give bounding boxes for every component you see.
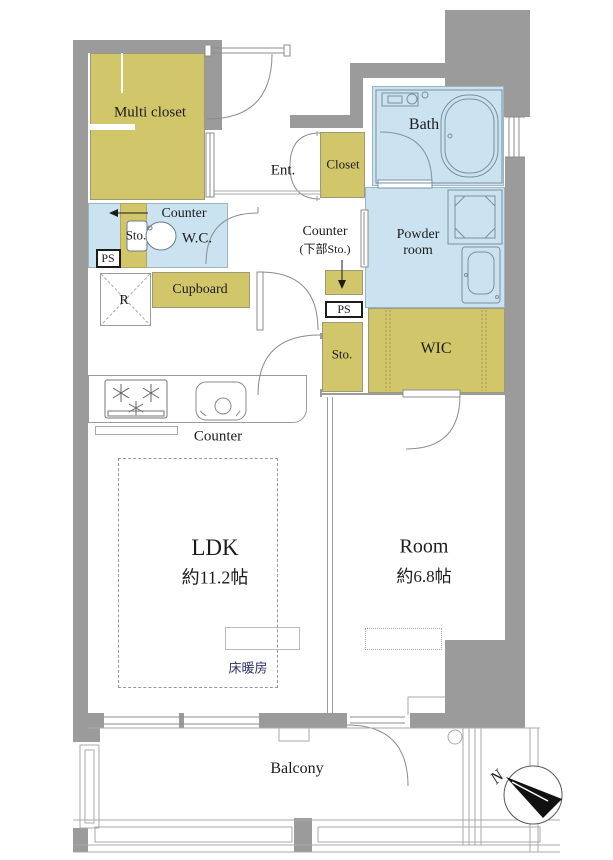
wall-right bbox=[505, 157, 525, 660]
wc-storage-label: Sto. bbox=[126, 229, 147, 244]
room-low-cabinet bbox=[365, 628, 442, 650]
wall-top-left bbox=[88, 40, 205, 53]
bath-window-gap bbox=[505, 117, 525, 157]
room-name-label: Room bbox=[400, 536, 449, 559]
bath-area bbox=[372, 86, 504, 186]
balcony-post bbox=[294, 818, 312, 852]
powder-room-label: Powder room bbox=[383, 227, 453, 259]
entry-step bbox=[210, 191, 322, 194]
cupboard-label: Cupboard bbox=[172, 282, 227, 298]
ldk-low-cabinet bbox=[225, 627, 300, 650]
refrigerator-label: R bbox=[119, 293, 128, 309]
wall-step-h2 bbox=[363, 63, 445, 78]
wall-left bbox=[73, 40, 88, 742]
wall-corridor-room-b bbox=[320, 389, 322, 397]
wall-closet-side bbox=[203, 40, 222, 130]
floor-plan: Multi closet Ent. Closet Bath Counter St… bbox=[0, 0, 613, 860]
balcony-left-stub bbox=[73, 828, 88, 852]
ldk-door bbox=[257, 272, 318, 330]
wic-door bbox=[403, 390, 460, 449]
wic-label: WIC bbox=[420, 340, 451, 358]
closet-divider bbox=[121, 53, 123, 93]
kitchen-counter-label: Counter bbox=[194, 428, 242, 445]
wall-bottom-mid bbox=[263, 713, 347, 728]
room-size-label: 約6.8帖 bbox=[396, 567, 451, 587]
kitchen-counter-area bbox=[88, 375, 307, 423]
hall-counter-label2: (下部Sto.) bbox=[299, 243, 350, 257]
wall-step-v1 bbox=[350, 63, 363, 128]
partition-ldk-room bbox=[327, 397, 333, 713]
wc-counter-label: Counter bbox=[161, 206, 206, 222]
balcony-label: Balcony bbox=[270, 760, 323, 778]
wall-bottom-right-seg bbox=[410, 713, 445, 728]
wall-room-top-b bbox=[459, 393, 505, 395]
wall-corridor-room-a bbox=[320, 333, 322, 339]
wall-block-bottom-right bbox=[445, 640, 525, 728]
bath-label: Bath bbox=[409, 116, 439, 134]
floor-heating-label: 床暖房 bbox=[228, 662, 267, 677]
wall-room-top-a bbox=[322, 393, 404, 395]
ldk-name-label: LDK bbox=[191, 535, 238, 561]
ldk-size-label: 約11.2帖 bbox=[182, 568, 249, 589]
closet-notch bbox=[90, 124, 135, 130]
ldk-window-gap1 bbox=[104, 713, 179, 728]
window-tick bbox=[259, 713, 263, 728]
ldk-window-gap2 bbox=[184, 713, 259, 728]
ps-left-label: PS bbox=[101, 252, 114, 266]
hall-storage-label: Sto. bbox=[332, 348, 353, 363]
drain-pipe-icon bbox=[448, 728, 481, 845]
wall-bottom-left-corner bbox=[73, 713, 100, 742]
ps-right-label: PS bbox=[337, 303, 350, 317]
under-counter-shelf bbox=[95, 426, 178, 435]
hall-counter-label1: Counter bbox=[302, 224, 347, 240]
hall-counter-block bbox=[325, 270, 363, 295]
multi-closet-label: Multi closet bbox=[114, 104, 186, 121]
entrance-label: Ent. bbox=[271, 162, 296, 179]
wc-label: W.C. bbox=[182, 230, 212, 247]
north-arrow bbox=[504, 766, 562, 824]
compass-north-label: N bbox=[486, 766, 508, 788]
closet-label: Closet bbox=[326, 158, 359, 173]
multi-closet-door bbox=[206, 133, 214, 197]
balcony-door-gap bbox=[347, 713, 408, 728]
